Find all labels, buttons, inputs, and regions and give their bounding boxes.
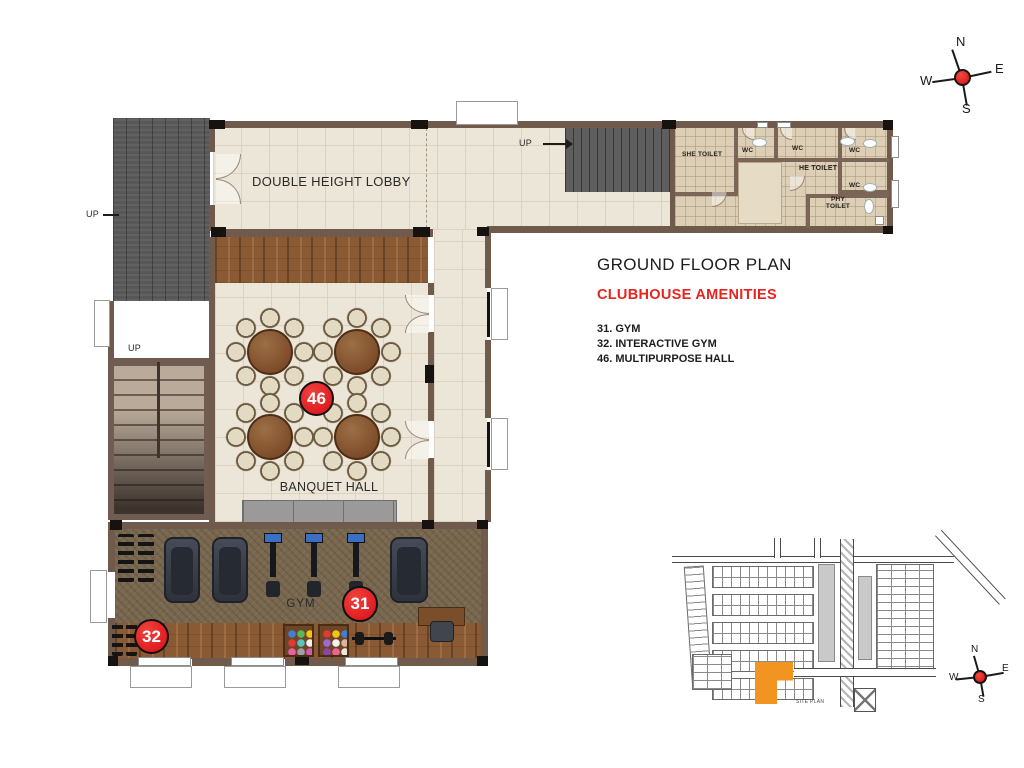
dumbbell-rack [118, 534, 134, 582]
site-road [794, 668, 936, 677]
machine-column [270, 543, 276, 577]
window [345, 657, 398, 666]
window [231, 657, 284, 666]
machine-seat [307, 581, 321, 597]
compass-rose-small: N E W S [940, 636, 1020, 716]
up-arrow-line [103, 214, 119, 216]
column [411, 120, 428, 129]
site-open-space [858, 576, 872, 660]
up-label: UP [128, 343, 141, 353]
page-subtitle: CLUBHOUSE AMENITIES [597, 287, 777, 303]
window [491, 288, 508, 340]
room-label-wc: WC [849, 182, 860, 189]
column [883, 226, 893, 234]
window [94, 300, 110, 347]
dumbbell-rack [138, 534, 154, 582]
wc-fixture [863, 183, 877, 192]
site-road [814, 538, 821, 558]
entry-steps-area [113, 118, 210, 301]
treadmill [212, 537, 248, 603]
marker-gym: 31 [342, 586, 378, 622]
up-arrow-line [543, 143, 567, 145]
toilet-vanity-counter [738, 162, 782, 224]
column [413, 227, 430, 237]
site-plot-row [712, 622, 814, 644]
site-key-plan: SITE PLAN [668, 536, 960, 726]
barbell-plate [355, 632, 364, 645]
wall [397, 658, 488, 666]
floor-plan-canvas: 46 31 32 DOUBLE HEIGHT LOBBY BANQUET HAL… [0, 0, 1024, 768]
up-label: UP [519, 138, 532, 148]
compass-letter-e: E [1002, 663, 1009, 674]
site-road [672, 556, 954, 563]
wall [209, 237, 215, 530]
marker-interactive-gym: 32 [134, 619, 169, 654]
machine-screen [305, 533, 323, 543]
medicine-ball-rack [318, 624, 349, 657]
room-label-gym: GYM [281, 598, 321, 611]
canopy-window [456, 101, 518, 125]
wall [670, 121, 675, 233]
column [477, 656, 488, 666]
column [477, 227, 489, 236]
wall [487, 226, 889, 233]
up-arrowhead [566, 139, 573, 149]
window [891, 180, 899, 208]
page-title: GROUND FLOOR PLAN [597, 255, 792, 275]
site-road-diagonal [935, 530, 1006, 605]
column [108, 656, 118, 666]
barbell-plate [384, 632, 393, 645]
barbell [352, 631, 396, 647]
compass-letter-s: S [962, 101, 971, 116]
wall [481, 529, 488, 659]
column [662, 120, 676, 129]
column [110, 520, 122, 530]
room-label-he-toilet: HE TOILET [799, 165, 837, 173]
site-plot-block [692, 654, 732, 690]
wall-partition [806, 198, 810, 228]
amenity-item: 31. GYM [597, 322, 734, 337]
window-sill [224, 666, 286, 688]
site-open-space [818, 564, 835, 662]
stair-divider-wall [157, 362, 160, 458]
wall [485, 470, 491, 522]
compass-letter-w: W [920, 73, 932, 88]
wall [192, 658, 235, 666]
room-label-phy-toilet: PHY TOILET [818, 196, 858, 211]
room-label-wc: WC [849, 147, 860, 154]
side-corridor-floor [434, 230, 487, 522]
room-label-banquet-hall: BANQUET HALL [269, 480, 389, 494]
column [209, 120, 225, 129]
amenities-list: 31. GYM 32. INTERACTIVE GYM 46. MULTIPUR… [597, 322, 734, 367]
cable-machine [260, 533, 286, 597]
wall-partition [675, 192, 737, 196]
machine-column [353, 543, 359, 577]
wall [428, 283, 434, 295]
stage-wood-floor [215, 237, 428, 283]
cable-machine [301, 533, 327, 597]
up-label: UP [86, 209, 99, 219]
marker-multipurpose-hall: 46 [299, 381, 334, 416]
amenity-item: 46. MULTIPURPOSE HALL [597, 352, 734, 367]
column [422, 520, 434, 529]
compass-letter-s: S [978, 694, 985, 705]
compass-letter-n: N [956, 34, 965, 49]
machine-seat [266, 581, 280, 597]
machine-screen [264, 533, 282, 543]
window-frame [487, 292, 490, 337]
wall [485, 233, 491, 288]
room-label-she-toilet: SHE TOILET [682, 151, 722, 158]
wc-fixture [840, 137, 855, 146]
compass-letter-w: W [949, 672, 958, 683]
window-sill [338, 666, 400, 688]
dumbbell-rack [112, 624, 123, 656]
machine-screen [347, 533, 365, 543]
site-road [774, 538, 781, 558]
wall [485, 340, 491, 418]
room-label-wc: WC [792, 145, 803, 152]
window [138, 657, 191, 666]
wall [428, 458, 434, 522]
wall-partition [838, 158, 842, 194]
site-main-road [840, 539, 854, 707]
window [491, 418, 508, 470]
column [883, 120, 893, 130]
wc-fixture [863, 139, 877, 148]
column [477, 520, 488, 529]
treadmill [164, 537, 200, 603]
wall [211, 229, 433, 237]
window-frame [487, 422, 490, 467]
stage-platform [242, 500, 397, 524]
washbasin [875, 216, 884, 225]
site-plot-block [876, 564, 934, 676]
column [425, 365, 434, 383]
window [891, 136, 899, 158]
wall [108, 529, 115, 572]
compass-center [973, 670, 987, 684]
wc-fixture [864, 199, 874, 214]
compass-letter-e: E [995, 61, 1004, 76]
site-structure [854, 688, 876, 712]
window-sill [130, 666, 192, 688]
upper-staircase [565, 128, 672, 192]
medicine-ball-rack [283, 624, 314, 657]
desk-chair [430, 621, 454, 642]
window [757, 122, 768, 128]
machine-column [311, 543, 317, 577]
room-label-wc: WC [742, 147, 753, 154]
treadmill [390, 537, 428, 603]
column [295, 656, 309, 665]
compass-center [954, 69, 971, 86]
site-plot-row [712, 594, 814, 616]
site-plan-label: SITE PLAN [796, 699, 824, 705]
wc-fixture [752, 138, 767, 147]
compass-letter-n: N [971, 644, 978, 655]
site-plot-row [712, 566, 814, 588]
wall-partition [774, 128, 778, 162]
double-height-dashed-line [426, 128, 428, 228]
column [211, 227, 226, 237]
amenity-item: 32. INTERACTIVE GYM [597, 337, 734, 352]
wall-partition [838, 128, 842, 162]
window [90, 570, 107, 623]
compass-rose: N E W S [918, 28, 1013, 123]
room-label-lobby: DOUBLE HEIGHT LOBBY [252, 175, 402, 190]
